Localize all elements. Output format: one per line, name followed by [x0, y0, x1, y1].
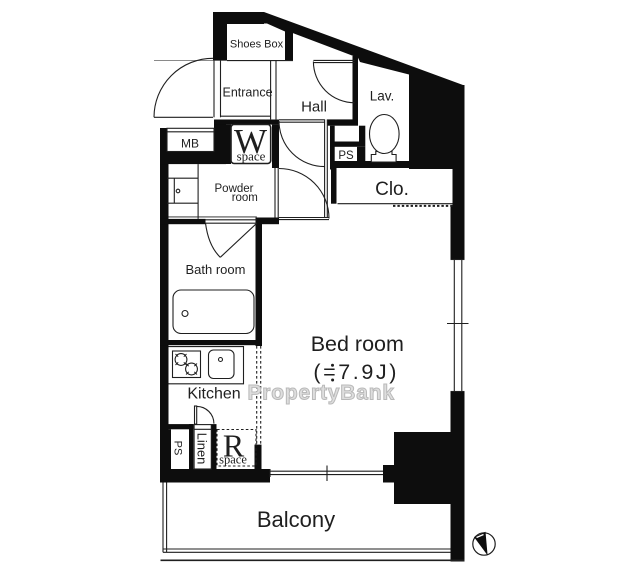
svg-text:Lav.: Lav. — [370, 89, 395, 104]
svg-text:Bed room: Bed room — [311, 332, 404, 356]
svg-text:MB: MB — [181, 137, 199, 151]
svg-text:PS: PS — [172, 441, 184, 456]
svg-text:Clo.: Clo. — [375, 179, 409, 200]
svg-text:PS: PS — [338, 150, 354, 162]
svg-text:space: space — [237, 149, 266, 164]
svg-text:space: space — [219, 452, 247, 466]
svg-text:Linen: Linen — [195, 433, 210, 465]
svg-text:Shoes Box: Shoes Box — [230, 39, 284, 51]
svg-text:Bath room: Bath room — [186, 262, 246, 277]
svg-text:Balcony: Balcony — [257, 507, 335, 532]
svg-text:room: room — [232, 192, 258, 204]
svg-text:PropertyBank: PropertyBank — [248, 382, 395, 405]
svg-text:Entrance: Entrance — [222, 86, 272, 100]
svg-text:Hall: Hall — [301, 99, 327, 116]
svg-text:(=7.9J): (=7.9J) — [313, 360, 399, 384]
svg-text:Kitchen: Kitchen — [187, 386, 240, 403]
